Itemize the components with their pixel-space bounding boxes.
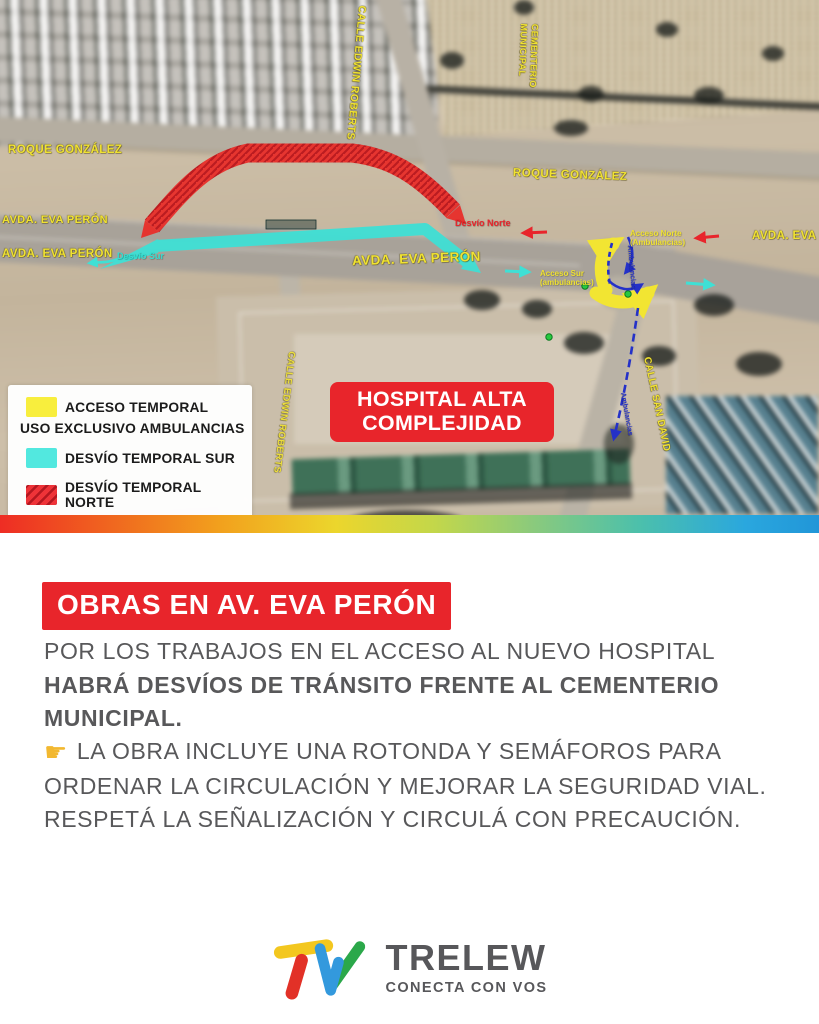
- legend-label: DESVÍO TEMPORAL SUR: [65, 451, 235, 466]
- label-desvio-sur: Desvío Sur: [117, 251, 164, 261]
- acceso-sur-line1: Acceso Sur: [540, 269, 594, 278]
- label-acceso-sur: Acceso Sur (ambulancias): [540, 269, 594, 287]
- rainbow-divider: [0, 515, 819, 533]
- north-arrow-right: [697, 236, 719, 238]
- paragraph-roundabout-notice: ☛ LA OBRA INCLUYE UNA ROTONDA Y SEMÁFORO…: [44, 735, 792, 837]
- legend-item-desvio-norte: DESVÍO TEMPORAL NORTE: [18, 480, 246, 510]
- paragraph1-regular: POR LOS TRABAJOS EN EL ACCESO AL NUEVO H…: [44, 638, 714, 664]
- pointing-hand-icon: ☛: [44, 737, 68, 767]
- acceso-norte-line2: (Ambulancias): [630, 238, 685, 247]
- ambulance-access-ramps: [596, 244, 648, 302]
- map-legend: ACCESO TEMPORAL USO EXCLUSIVO AMBULANCIA…: [8, 385, 252, 515]
- south-arrow-right: [686, 283, 712, 285]
- street-label-roque-gonzalez-left: ROQUE GONZÁLEZ: [8, 144, 122, 156]
- trelew-logo: TRELEW CONECTA CON VOS: [272, 935, 548, 1001]
- traffic-notice-poster: ROQUE GONZÁLEZ ROQUE GONZÁLEZ CALLE EDWI…: [0, 0, 819, 1024]
- hospital-badge: HOSPITAL ALTA COMPLEJIDAD: [330, 382, 554, 442]
- brand-name: TRELEW: [386, 940, 548, 976]
- legend-swatch-yellow: [26, 397, 57, 417]
- paragraph2-text: LA OBRA INCLUYE UNA ROTONDA Y SEMÁFOROS …: [44, 738, 767, 832]
- paragraph1-bold: HABRÁ DESVÍOS DE TRÁNSITO FRENTE AL CEME…: [44, 672, 719, 732]
- legend-label: ACCESO TEMPORAL: [65, 400, 208, 415]
- label-desvio-norte: Desvío Norte: [455, 218, 511, 228]
- legend-item-acceso-temporal-line2: USO EXCLUSIVO AMBULANCIAS: [20, 421, 246, 436]
- brand-tagline: CONECTA CON VOS: [386, 980, 548, 996]
- announcement-section: OBRAS EN AV. EVA PERÓN POR LOS TRABAJOS …: [0, 533, 819, 1024]
- legend-item-acceso-temporal: ACCESO TEMPORAL: [18, 397, 246, 417]
- legend-swatch-red-hatch: [26, 485, 57, 505]
- paragraph-works-notice: POR LOS TRABAJOS EN EL ACCESO AL NUEVO H…: [44, 635, 792, 736]
- legend-label: DESVÍO TEMPORAL NORTE: [65, 480, 246, 510]
- hospital-badge-line1: HOSPITAL ALTA: [334, 388, 550, 412]
- north-arrow-mid: [524, 232, 547, 233]
- label-acceso-norte: Acceso Norte (Ambulancias): [630, 229, 685, 247]
- tw-logo-mark: [272, 935, 370, 1001]
- traffic-light-dot: [546, 334, 552, 340]
- street-label-eva-peron-right: AVDA. EVA PERÓN: [752, 230, 819, 242]
- hospital-badge-line2: COMPLEJIDAD: [334, 412, 550, 436]
- legend-item-desvio-sur: DESVÍO TEMPORAL SUR: [18, 448, 246, 468]
- traffic-light-dot: [625, 291, 631, 297]
- south-arrow-mid: [505, 271, 528, 272]
- page-title: OBRAS EN AV. EVA PERÓN: [42, 582, 451, 630]
- street-label-eva-peron-left-1: AVDA. EVA PERÓN: [2, 214, 108, 226]
- acceso-norte-line1: Acceso Norte: [630, 229, 685, 238]
- street-label-cementerio-municipal: CEMENTERIO MUNICIPAL: [515, 23, 540, 88]
- legend-swatch-cyan: [26, 448, 57, 468]
- logo-text: TRELEW CONECTA CON VOS: [386, 940, 548, 996]
- acceso-sur-line2: (ambulancias): [540, 278, 594, 287]
- satellite-map: ROQUE GONZÁLEZ ROQUE GONZÁLEZ CALLE EDWI…: [0, 0, 819, 515]
- street-label-eva-peron-left-2: AVDA. EVA PERÓN: [2, 248, 113, 260]
